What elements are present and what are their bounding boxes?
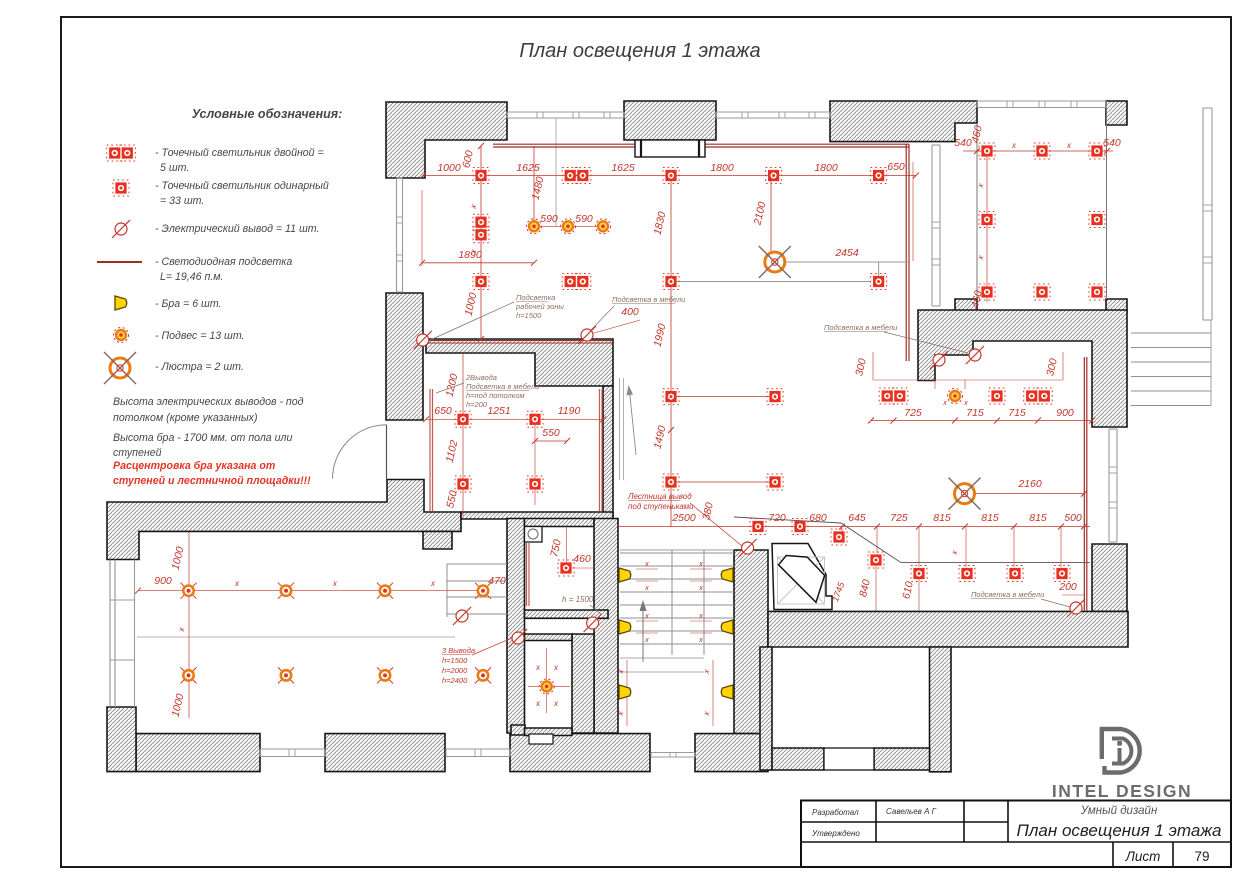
svg-text:79: 79 [1194, 849, 1209, 864]
svg-text:ступеней и лестничной площадки: ступеней и лестничной площадки!!! [113, 475, 311, 487]
svg-text:x: x [644, 561, 649, 568]
svg-text:h=2000: h=2000 [442, 666, 468, 675]
svg-text:Подсветка: Подсветка [516, 293, 555, 302]
svg-text:1000: 1000 [437, 162, 461, 174]
svg-text:рабочей зоны: рабочей зоны [515, 302, 564, 311]
svg-text:h = 1500: h = 1500 [562, 595, 594, 604]
svg-text:720: 720 [768, 512, 786, 524]
svg-text:- Люстра = 2 шт.: - Люстра = 2 шт. [155, 361, 244, 373]
svg-text:815: 815 [981, 512, 999, 524]
svg-text:2Вывода: 2Вывода [465, 373, 497, 382]
svg-text:715: 715 [1008, 407, 1026, 419]
svg-text:- Точечный светильник двойной: - Точечный светильник двойной = [155, 147, 324, 159]
svg-text:1800: 1800 [814, 162, 838, 174]
svg-text:3 Вывода: 3 Вывода [442, 646, 475, 655]
svg-text:x: x [644, 613, 649, 620]
svg-text:460: 460 [573, 553, 591, 565]
svg-text:Условные обозначения:: Условные обозначения: [192, 107, 343, 121]
svg-text:ступеней: ступеней [113, 447, 162, 459]
svg-text:Разработал: Разработал [812, 808, 859, 817]
svg-text:Подсветка в мебели: Подсветка в мебели [971, 590, 1045, 599]
svg-text:- Точечный светильник одинарны: - Точечный светильник одинарный [155, 180, 329, 192]
svg-text:Высота электрических выводов -: Высота электрических выводов - под [113, 396, 304, 408]
svg-text:1625: 1625 [516, 162, 540, 174]
svg-text:Подсветка в мебели: Подсветка в мебели [612, 295, 686, 304]
svg-text:Подсветка в мебели: Подсветка в мебели [824, 323, 898, 332]
svg-text:L= 19,46 п.м.: L= 19,46 п.м. [160, 271, 223, 283]
svg-text:INTEL DESIGN: INTEL DESIGN [1052, 781, 1192, 801]
svg-text:2160: 2160 [1017, 478, 1042, 490]
svg-text:1625: 1625 [611, 162, 635, 174]
svg-text:- Электрический вывод = 11 шт.: - Электрический вывод = 11 шт. [155, 223, 319, 235]
svg-text:x: x [963, 400, 968, 407]
svg-text:200: 200 [1058, 581, 1077, 593]
svg-text:Утверждено: Утверждено [811, 829, 860, 838]
svg-text:540: 540 [1103, 137, 1121, 149]
svg-text:= 33 шт.: = 33 шт. [160, 195, 204, 207]
svg-text:650: 650 [434, 405, 452, 417]
svg-text:900: 900 [1056, 407, 1074, 419]
svg-text:550: 550 [542, 427, 560, 439]
svg-text:1190: 1190 [558, 405, 581, 417]
svg-text:- Подвес = 13 шт.: - Подвес = 13 шт. [155, 330, 245, 342]
svg-text:650: 650 [887, 161, 905, 173]
svg-text:Высота бра - 1700 мм. от пола: Высота бра - 1700 мм. от пола или [113, 432, 292, 444]
svg-text:1251: 1251 [487, 405, 510, 417]
svg-text:потолком (кроме указанных): потолком (кроме указанных) [113, 412, 258, 424]
svg-text:под ступеньками: под ступеньками [628, 502, 694, 511]
svg-text:815: 815 [933, 512, 951, 524]
svg-text:590: 590 [575, 213, 593, 225]
svg-text:2454: 2454 [834, 247, 859, 259]
svg-text:590: 590 [540, 213, 558, 225]
svg-text:Лестница вывод: Лестница вывод [627, 492, 692, 501]
svg-text:500: 500 [1064, 512, 1082, 524]
svg-text:План освещения 1 этажа: План освещения 1 этажа [519, 40, 760, 62]
svg-text:725: 725 [890, 512, 908, 524]
svg-text:h=под потолком: h=под потолком [466, 391, 525, 400]
svg-text:645: 645 [848, 512, 866, 524]
svg-text:x: x [698, 637, 703, 644]
svg-text:715: 715 [966, 407, 984, 419]
svg-text:Савельев А Г: Савельев А Г [886, 807, 937, 816]
svg-text:h=1500: h=1500 [516, 311, 542, 320]
svg-text:h=2400: h=2400 [442, 676, 468, 685]
svg-text:400: 400 [621, 306, 639, 318]
svg-text:5 шт.: 5 шт. [160, 162, 189, 174]
svg-text:h=1500: h=1500 [442, 656, 468, 665]
svg-text:Умный дизайн: Умный дизайн [1080, 805, 1158, 817]
svg-text:x: x [698, 585, 703, 592]
svg-text:x: x [698, 613, 703, 620]
svg-text:900: 900 [154, 575, 172, 587]
svg-text:x: x [644, 585, 649, 592]
svg-text:815: 815 [1029, 512, 1047, 524]
svg-text:x: x [942, 400, 947, 407]
svg-text:2500: 2500 [671, 512, 696, 524]
svg-text:План освещения 1 этажа: План освещения 1 этажа [1017, 821, 1222, 840]
svg-text:470: 470 [488, 575, 506, 587]
svg-text:h=200: h=200 [466, 400, 488, 409]
svg-text:680: 680 [809, 512, 827, 524]
svg-text:Подсветка в мебели: Подсветка в мебели [466, 382, 540, 391]
svg-text:1800: 1800 [710, 162, 734, 174]
svg-text:- Бра = 6 шт.: - Бра = 6 шт. [155, 298, 222, 310]
svg-text:1890: 1890 [458, 249, 482, 261]
svg-text:- Светодиодная подсветка: - Светодиодная подсветка [155, 256, 292, 268]
svg-text:Лист: Лист [1125, 849, 1161, 864]
svg-text:x: x [644, 637, 649, 644]
svg-text:Расцентровка бра указана от: Расцентровка бра указана от [113, 460, 275, 472]
svg-text:x: x [698, 561, 703, 568]
svg-text:725: 725 [904, 407, 922, 419]
